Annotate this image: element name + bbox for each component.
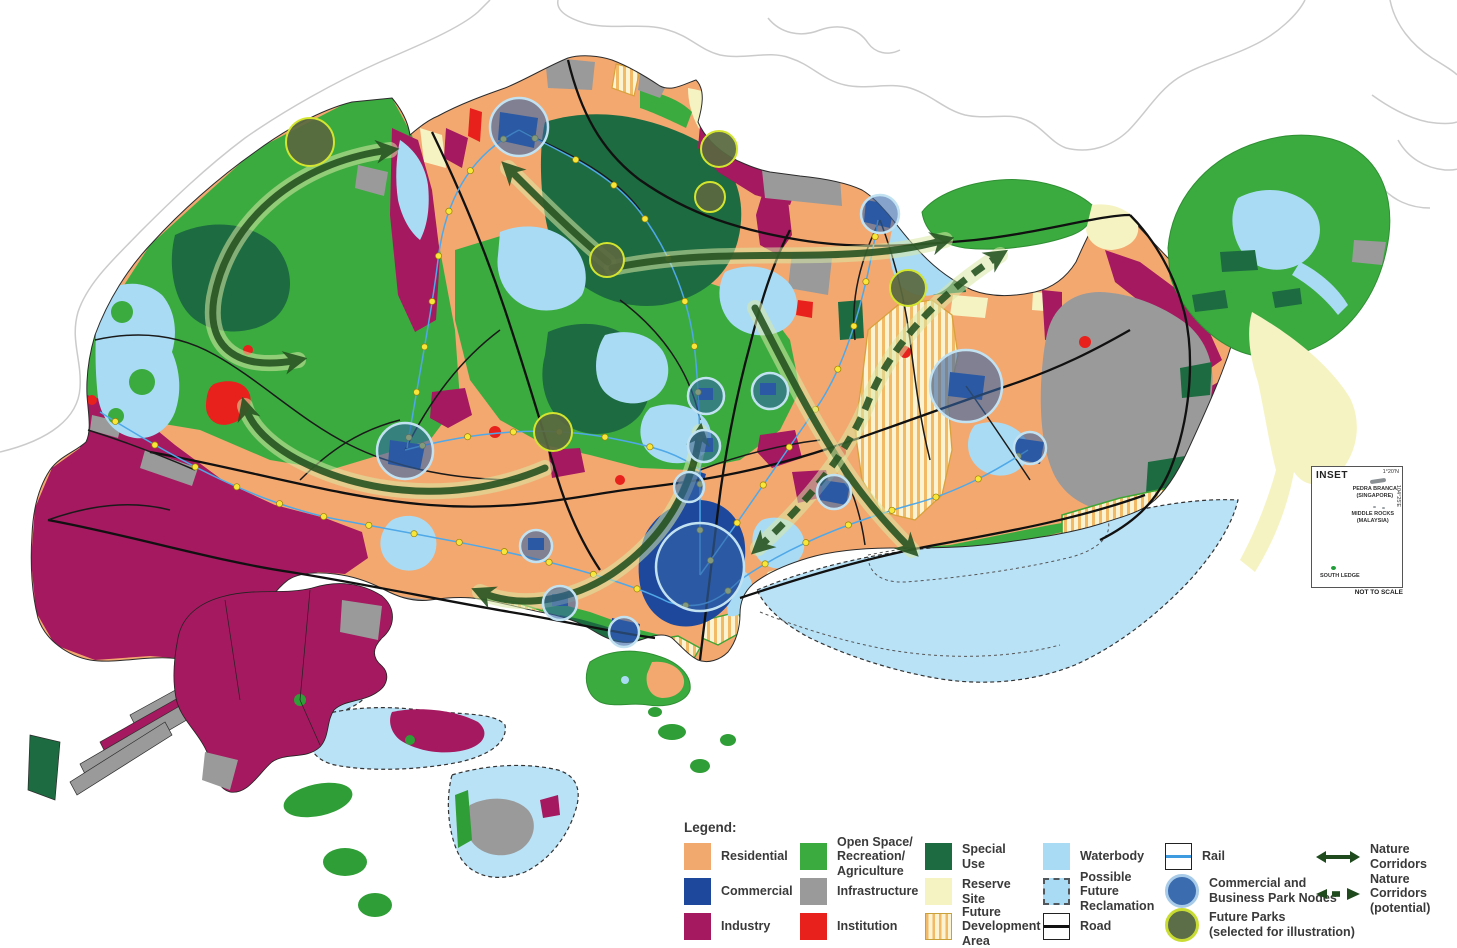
rail-station-dot xyxy=(760,482,766,488)
legend-label: Industry xyxy=(721,919,770,933)
nature-corridors-swatch xyxy=(1316,849,1360,865)
rail-station-dot xyxy=(411,531,417,537)
future-development-area-swatch xyxy=(925,913,952,940)
rail-station-dot xyxy=(691,343,697,349)
rail-station-dot xyxy=(446,208,452,214)
singapore-master-plan-page: { "map": { "inset": { "title": "INSET", … xyxy=(0,0,1457,943)
rail-station-dot xyxy=(192,464,198,470)
legend-item-road: Road xyxy=(1043,913,1111,940)
legend-label: Future Parks (selected for illustration) xyxy=(1209,910,1355,938)
road-swatch xyxy=(1043,913,1070,940)
future-parks-swatch xyxy=(1165,908,1199,942)
legend-item-nature-corridors-potential: Nature Corridors (potential) xyxy=(1316,880,1457,907)
rail-station-dot xyxy=(933,494,939,500)
legend-label: Reserve Site xyxy=(962,877,1011,905)
rail-station-dot xyxy=(234,484,240,490)
waterbody-swatch xyxy=(1043,843,1070,870)
legend-item-open-space: Open Space/ Recreation/ Agriculture xyxy=(800,843,913,870)
rail-station-dot xyxy=(366,522,372,528)
rail-station-dot xyxy=(602,434,608,440)
inset-scale-note: NOT TO SCALE xyxy=(1340,589,1403,596)
rail-station-dot xyxy=(421,344,427,350)
possible-future-reclamation-swatch xyxy=(1043,878,1070,905)
rail-swatch xyxy=(1165,843,1192,870)
industry-swatch xyxy=(684,913,711,940)
special-use-swatch xyxy=(925,843,952,870)
legend-item-rail: Rail xyxy=(1165,843,1225,870)
legend-item-residential: Residential xyxy=(684,843,788,870)
legend-item-infrastructure: Infrastructure xyxy=(800,878,918,905)
legend-item-institution: Institution xyxy=(800,913,897,940)
legend-label: Residential xyxy=(721,849,788,863)
legend-item-business-park-nodes: Commercial and Business Park Nodes xyxy=(1165,877,1337,904)
rail-station-dot xyxy=(762,561,768,567)
infrastructure-swatch xyxy=(800,878,827,905)
inset-box: INSET 1°20'N 104°25'E PEDRA BRANCA (SING… xyxy=(1311,466,1403,588)
legend-label: Road xyxy=(1080,919,1111,933)
pulau-tekong xyxy=(1168,135,1390,357)
rail-station-dot xyxy=(835,366,841,372)
rail-station-dot xyxy=(889,507,895,513)
legend-label: Possible Future Reclamation xyxy=(1080,870,1154,912)
rail-station-dot xyxy=(611,182,617,188)
legend-label: Commercial xyxy=(721,884,793,898)
rail-station-dot xyxy=(510,429,516,435)
legend-label: Infrastructure xyxy=(837,884,918,898)
reserve-site-swatch xyxy=(925,878,952,905)
legend-item-future-development: Future Development Area xyxy=(925,913,1041,940)
rail-station-dot xyxy=(435,253,441,259)
rail-station-dot xyxy=(975,476,981,482)
legend-label: Nature Corridors (potential) xyxy=(1370,872,1457,914)
rail-station-dot xyxy=(429,298,435,304)
legend-item-future-parks: Future Parks (selected for illustration) xyxy=(1165,911,1355,938)
rail-station-dot xyxy=(573,157,579,163)
rail-station-dot xyxy=(276,501,282,507)
business-park-node-swatch xyxy=(1165,874,1199,908)
rail-station-dot xyxy=(682,298,688,304)
pulau-ubin xyxy=(922,180,1138,250)
rail-station-dot xyxy=(467,168,473,174)
nature-corridors-potential-swatch xyxy=(1316,886,1360,902)
rail-station-dot xyxy=(786,444,792,450)
legend-item-nature-corridors: Nature Corridors xyxy=(1316,843,1457,870)
rail-station-dot xyxy=(647,444,653,450)
rail-station-dot xyxy=(413,389,419,395)
rail-station-dot xyxy=(863,279,869,285)
pedra-branca-label: PEDRA BRANCA (SINGAPORE) xyxy=(1353,486,1397,500)
residential-swatch xyxy=(684,843,711,870)
south-ledge-island-shape xyxy=(1331,566,1336,570)
singapore-land-use-map xyxy=(0,0,1457,943)
legend-label: Waterbody xyxy=(1080,849,1144,863)
legend-title: Legend: xyxy=(684,820,737,835)
legend-label: Future Development Area xyxy=(962,905,1041,947)
legend-label: Special Use xyxy=(962,842,1006,870)
rail-station-dot xyxy=(851,323,857,329)
legend-label: Rail xyxy=(1202,849,1225,863)
legend-item-reserve-site: Reserve Site xyxy=(925,878,1011,905)
inset-title: INSET xyxy=(1316,470,1348,481)
rail-station-dot xyxy=(501,549,507,555)
rail-station-dot xyxy=(456,539,462,545)
rail-station-dot xyxy=(803,539,809,545)
legend-item-special-use: Special Use xyxy=(925,843,1006,870)
institution-swatch xyxy=(800,913,827,940)
rail-station-dot xyxy=(872,234,878,240)
commercial-swatch xyxy=(684,878,711,905)
rail-station-dot xyxy=(845,522,851,528)
rail-station-dot xyxy=(642,216,648,222)
rail-station-dot xyxy=(112,418,118,424)
legend-item-waterbody: Waterbody xyxy=(1043,843,1144,870)
rail-station-dot xyxy=(321,513,327,519)
rail-station-dot xyxy=(152,442,158,448)
south-ledge-label: SOUTH LEDGE xyxy=(1320,573,1360,579)
inset-latitude-label: 1°20'N xyxy=(1383,469,1399,475)
legend-item-commercial: Commercial xyxy=(684,878,793,905)
legend-item-reclamation: Possible Future Reclamation xyxy=(1043,878,1154,905)
legend-item-industry: Industry xyxy=(684,913,770,940)
legend-label: Nature Corridors xyxy=(1370,842,1457,870)
open-space-swatch xyxy=(800,843,827,870)
rail-station-dot xyxy=(634,586,640,592)
pedra-branca-island-shape xyxy=(1370,478,1386,484)
rail-station-dot xyxy=(464,434,470,440)
sentosa-island xyxy=(586,651,690,706)
middle-rocks-label: MIDDLE ROCKS (MALAYSIA) xyxy=(1352,511,1394,525)
rail-station-dot xyxy=(734,520,740,526)
legend-label: Institution xyxy=(837,919,897,933)
rail-station-dot xyxy=(546,559,552,565)
legend-label: Open Space/ Recreation/ Agriculture xyxy=(837,835,913,877)
